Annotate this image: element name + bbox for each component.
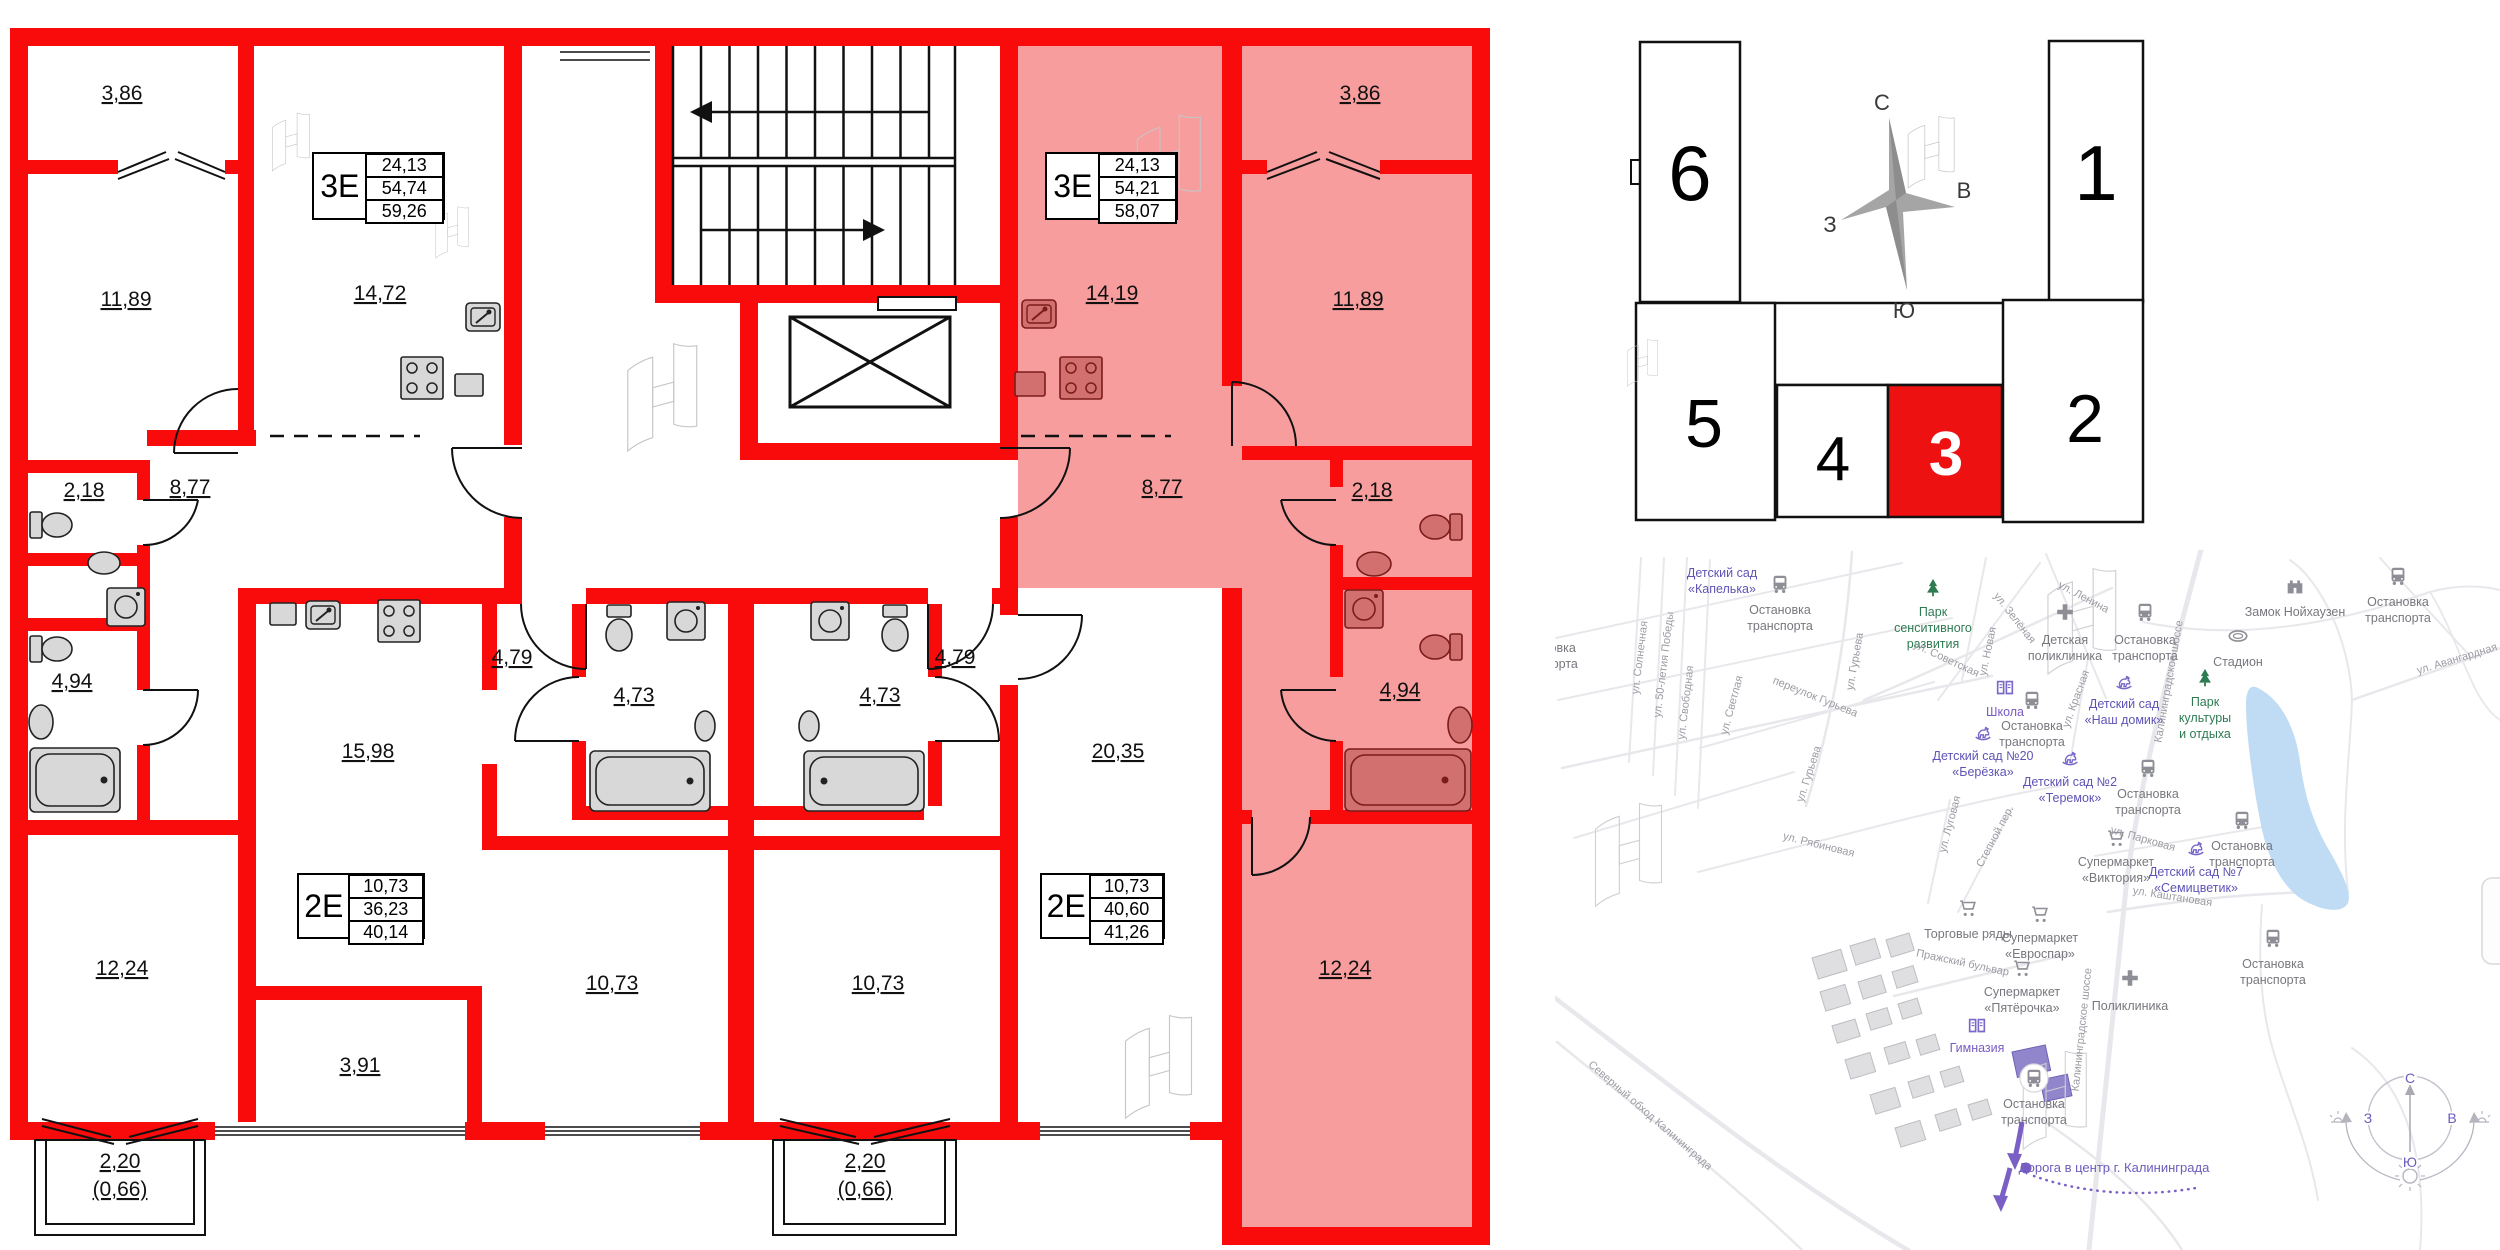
apartment-type: 2Е [1042,875,1090,937]
sun-west: З [2364,1110,2372,1126]
poi-label: транспорта [2115,803,2181,817]
room-area-label: 2,20 [845,1150,886,1173]
room-area-label: (0,66) [93,1178,148,1201]
room-area-label: 4,79 [935,646,976,669]
poi-label: Остановка [2242,957,2304,971]
poi-label: транспорта [2001,1113,2067,1127]
listing-page: 3,8611,8914,728,772,184,9412,243,912,20(… [0,0,2500,1250]
room-area-label: 14,19 [1086,282,1139,305]
room-area-label: 12,24 [1319,957,1372,980]
apartment-area-value: 40,14 [348,920,424,945]
room-area-label: 3,86 [102,82,143,105]
sun-north: С [2405,1070,2415,1086]
apartment-area-value: 24,13 [365,153,444,178]
poi-label: Детский сад [1687,566,1758,580]
scheme-section-number: 1 [2074,129,2117,217]
poi-label: Поликлиника [2092,999,2168,1013]
poi-label: Остановка [2001,719,2063,733]
poi-label: транспорта [1555,657,1578,671]
apartment-area-value: 10,73 [348,874,424,899]
sun-east: В [2447,1110,2456,1126]
poi-label: Детский сад №7 [2149,865,2243,879]
highlighted-apartment-fill[interactable] [1018,46,1472,1227]
room-area-label: 11,89 [1333,288,1384,311]
poi-label: Школа [1986,705,2024,719]
apartment-area-value: 58,07 [1098,199,1177,224]
location-map[interactable]: ОстановкатранспортаОстановкатранспортаОс… [1555,550,2500,1250]
poi-label: «Наш домик» [2085,713,2164,727]
room-area-label: 14,72 [354,282,407,305]
apartment-info-table-right-3e: 3Е24,1354,2158,07 [1045,152,1178,220]
room-area-label: 10,73 [586,972,639,995]
poi-label: Гимназия [1950,1041,2005,1055]
room-area-label: 4,73 [614,684,655,707]
room-area-label: 2,18 [1352,479,1393,502]
room-area-label: 12,24 [96,957,149,980]
room-area-label: 8,77 [170,476,211,499]
room-area-label: 15,98 [342,740,395,763]
poi-label: Детский сад №20 [1932,749,2033,763]
poi-label: Остановка [2117,787,2179,801]
apartment-info-table-left-2e: 2Е10,7336,2340,14 [297,873,425,939]
room-area-label: 3,91 [340,1054,381,1077]
poi-label: «Пятёрочка» [1984,1001,2059,1015]
poi-label: Остановка [1749,603,1811,617]
stairs [673,46,955,285]
scheme-section-number: 2 [2066,381,2104,457]
poi-label: Детский сад [2089,697,2160,711]
poi-label: Супермаркет [1984,985,2061,999]
compass-east: В [1957,178,1972,203]
room-area-label: 4,73 [860,684,901,707]
room-area-label: 4,94 [52,670,93,693]
poi-label: Остановка [2211,839,2273,853]
scheme-section-number: 5 [1685,386,1723,462]
poi-label: Остановка [2003,1097,2065,1111]
apartment-type: 2Е [299,875,349,937]
poi-label: «Капелька» [1688,582,1756,596]
room-area-label: 2,18 [64,479,105,502]
room-area-label: (0,66) [838,1178,893,1201]
apartment-info-table-right-2e: 2Е10,7340,6041,26 [1040,873,1165,939]
poi-label: Детский сад №2 [2023,775,2117,789]
room-area-label: 4,94 [1380,679,1421,702]
room-area-label: 2,20 [100,1150,141,1173]
apartment-area-value: 54,74 [365,176,444,201]
scheme-section-number: 3 [1929,420,1963,489]
developer-watermark [1908,116,1954,188]
poi-label: Остановка [2367,595,2429,609]
poi-label: Стадион [2213,655,2263,669]
room-area-label: 3,86 [1340,82,1381,105]
scheme-section-number: 6 [1668,129,1711,217]
poi-label: транспорта [2365,611,2431,625]
balconies [35,1140,956,1235]
room-area-label: 11,89 [101,288,152,311]
poi-label: Супермаркет [2002,931,2079,945]
poi-label: Остановка [2114,633,2176,647]
compass-west: З [1823,212,1836,237]
poi-label: «Виктория» [2082,871,2150,885]
apartment-type: 3Е [314,154,366,218]
route-label: Дорога в центр г. Калининграда [2019,1160,2210,1175]
poi-label: культуры [2179,711,2231,725]
poi-label: Замок Нойхаузен [2245,605,2346,619]
apartment-area-value: 59,26 [365,199,444,224]
floor-plan: 3,8611,8914,728,772,184,9412,243,912,20(… [0,0,1530,1250]
poi-label: «Берёзка» [1952,765,2013,779]
poi-label: транспорта [2240,973,2306,987]
poi-label: сенситивного [1894,621,1972,635]
poi-label: Детская [2042,633,2088,647]
poi-label: «Евроспар» [2005,947,2075,961]
poi-label: Парк [1919,605,1948,619]
apartment-type: 3Е [1047,154,1099,218]
building-scheme: 615432 С Ю З В [1620,30,2450,530]
room-area-label: 8,77 [1142,476,1183,499]
apartment-area-value: 36,23 [348,897,424,922]
apartment-area-value: 40,60 [1089,897,1164,922]
map-side-panel-corner [2482,878,2500,964]
sun-south: Ю [2403,1154,2417,1170]
poi-label: поликлиника [2028,649,2102,663]
poi-label: транспорта [1999,735,2065,749]
apartment-area-value: 54,21 [1098,176,1177,201]
poi-label: транспорта [1747,619,1813,633]
floor-plan-svg: 3,8611,8914,728,772,184,9412,243,912,20(… [0,0,1530,1250]
compass-south: Ю [1893,298,1915,323]
poi-label: Супермаркет [2078,855,2155,869]
room-area-label: 4,79 [492,646,533,669]
compass-north: С [1874,90,1890,115]
elevator [790,297,956,407]
scheme-section-number: 4 [1816,425,1850,494]
poi-label: Торговые ряды [1924,927,2012,941]
poi-label: «Теремок» [2039,791,2102,805]
apartment-area-value: 10,73 [1089,874,1164,899]
poi-label: Парк [2191,695,2220,709]
poi-label: Остановка [1555,641,1576,655]
poi-label: и отдыха [2179,727,2231,741]
room-area-label: 20,35 [1092,740,1145,763]
apartment-area-value: 41,26 [1089,920,1164,945]
apartment-area-value: 24,13 [1098,153,1177,178]
room-area-label: 10,73 [852,972,905,995]
apartment-info-table-left-3e: 3Е24,1354,7459,26 [312,152,445,220]
